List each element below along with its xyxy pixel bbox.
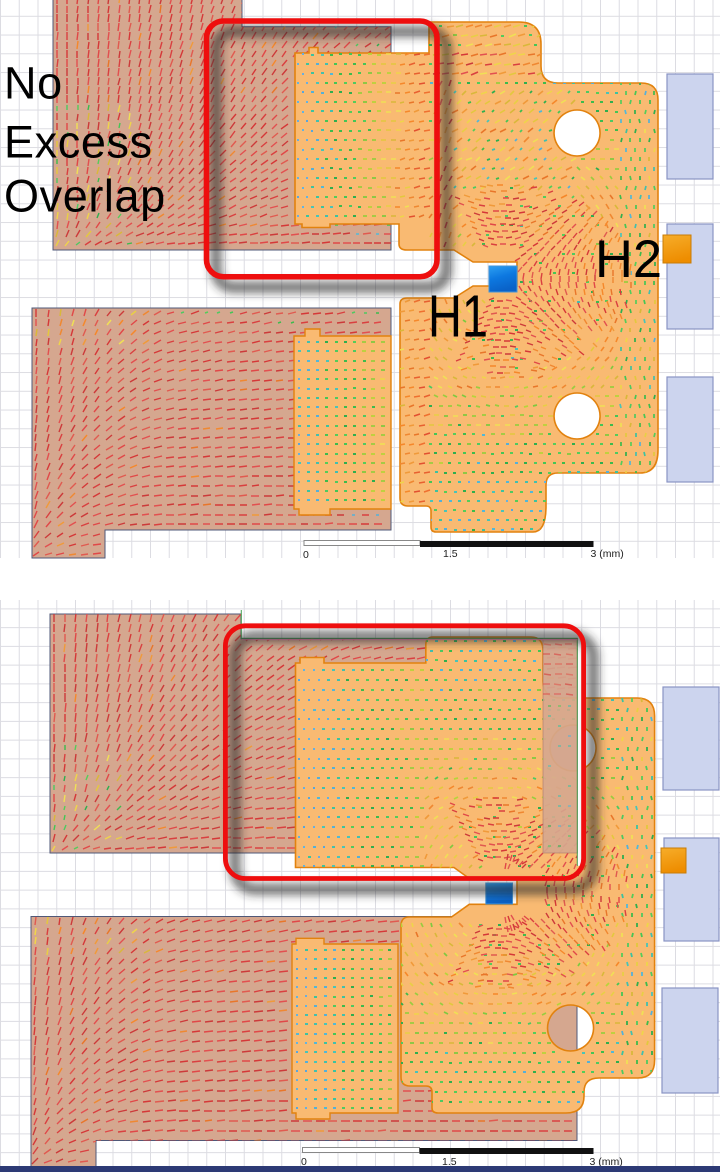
svg-text:No: No [4, 58, 63, 109]
svg-text:H2: H2 [595, 230, 662, 289]
svg-text:Overlap: Overlap [4, 171, 166, 222]
svg-text:0: 0 [303, 549, 309, 561]
svg-text:H1: H1 [428, 283, 488, 350]
svg-text:3 (mm): 3 (mm) [591, 548, 624, 560]
svg-text:Excess: Excess [4, 117, 153, 168]
svg-text:1.5: 1.5 [443, 548, 458, 560]
